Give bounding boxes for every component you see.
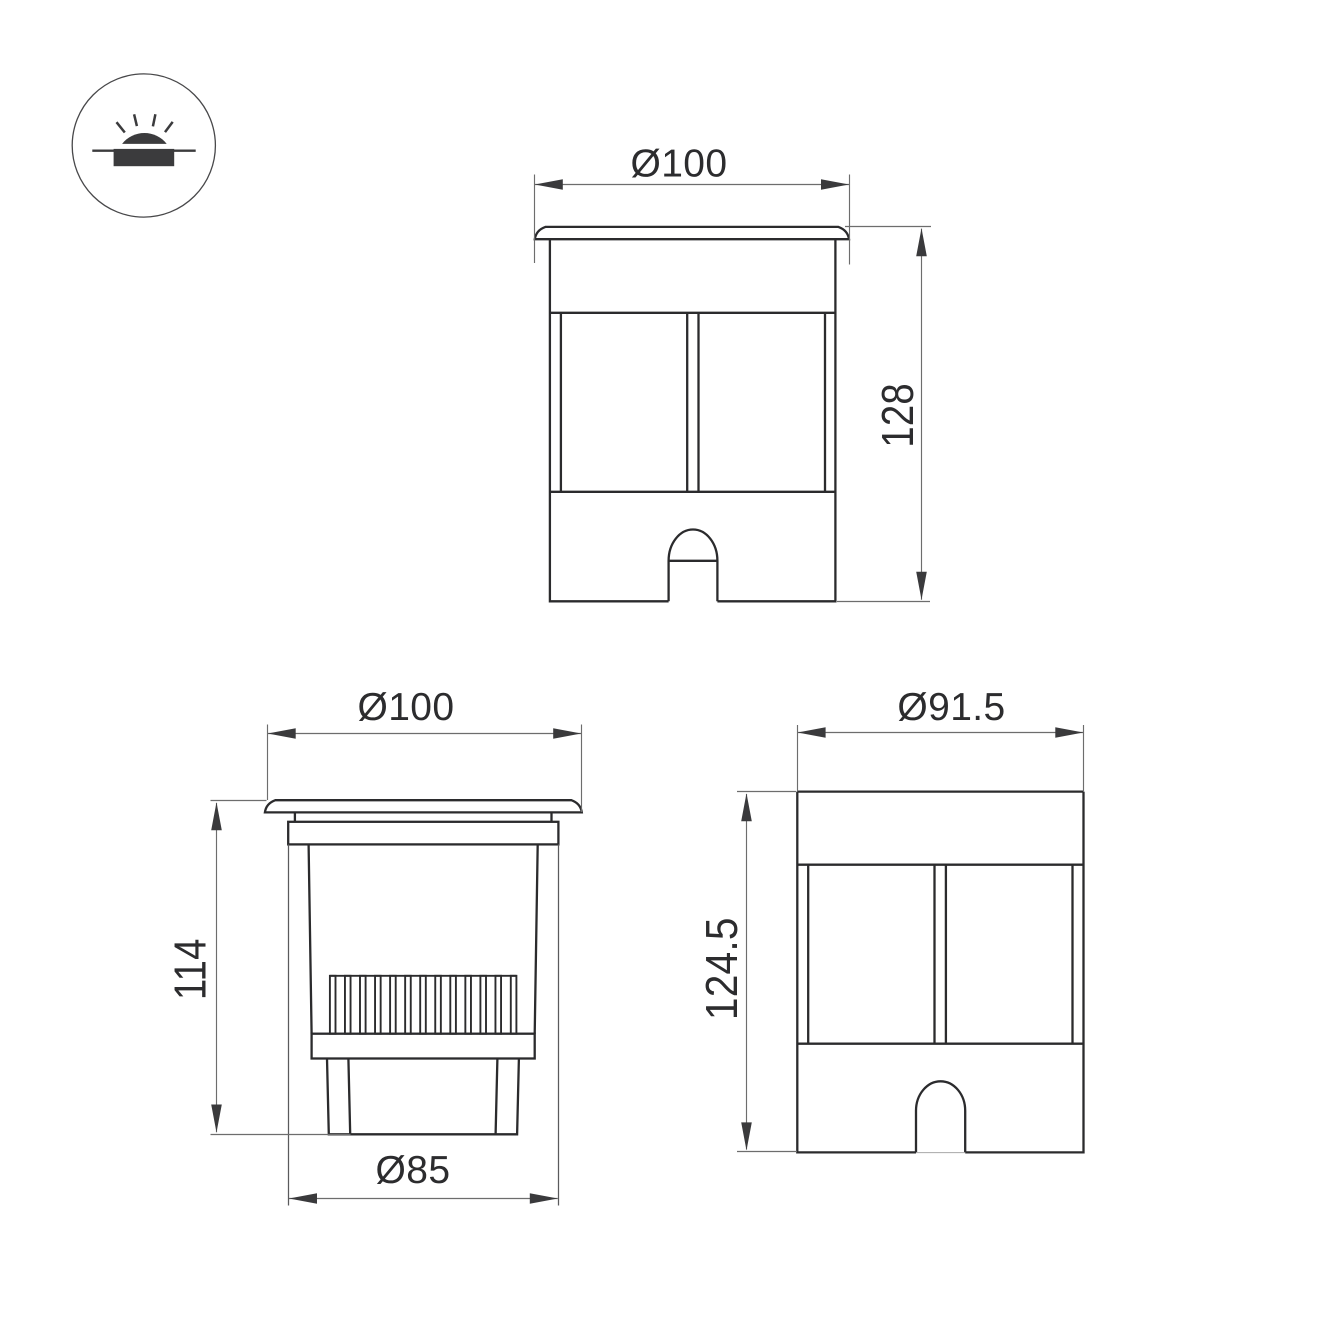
svg-text:128: 128 <box>872 383 923 447</box>
svg-text:114: 114 <box>164 938 215 999</box>
svg-text:Ø85: Ø85 <box>376 1149 451 1192</box>
svg-text:Ø91.5: Ø91.5 <box>897 686 1005 729</box>
svg-text:Ø100: Ø100 <box>357 686 454 729</box>
svg-text:Ø100: Ø100 <box>630 143 727 186</box>
svg-text:124.5: 124.5 <box>696 917 747 1020</box>
